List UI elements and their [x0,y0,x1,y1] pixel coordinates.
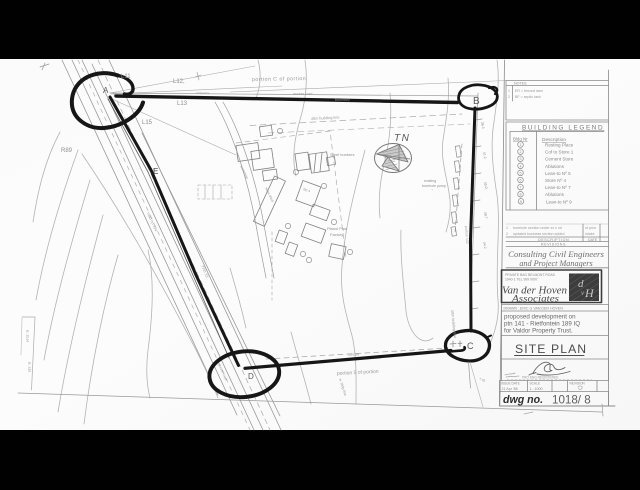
svg-text:existing: existing [424,179,436,183]
svg-text:21 Apr '88: 21 Apr '88 [502,387,518,391]
svg-text:and Project Managers: and Project Managers [519,259,592,268]
svg-text:2: 2 [508,95,510,99]
svg-text:Consulting Civil Engineers: Consulting Civil Engineers [508,249,604,259]
svg-text:intake: intake [585,232,595,236]
svg-text:2: 2 [506,232,508,236]
svg-text:→: → [430,187,434,191]
svg-text:ISSUE DATE: ISSUE DATE [501,382,520,386]
svg-text:2: 2 [520,150,522,154]
svg-text:access road: access road [293,92,312,96]
svg-text:H: H [584,286,595,300]
svg-text:boundary: boundary [335,98,350,102]
svg-text:PRIVATE BAG BELMONT ROAD: PRIVATE BAG BELMONT ROAD [505,273,556,277]
svg-text:Steel bunkers: Steel bunkers [330,152,354,157]
svg-text:L11: L11 [121,74,131,80]
svg-text:1: 1 [508,89,510,93]
svg-text:Cof to Store 1: Cof to Store 1 [545,150,574,155]
svg-text:L13: L13 [177,101,188,107]
svg-text:SCALE: SCALE [530,382,540,386]
svg-text:L12,: L12, [173,79,185,85]
svg-text:1940-1 TEL 999 9097: 1940-1 TEL 999 9097 [505,278,538,282]
svg-text:DATE: DATE [588,238,598,242]
svg-text:updated business section ad: updated business section added [513,232,565,236]
svg-text:R. 334: R. 334 [27,362,31,372]
svg-text:Lean-to Nº 7: Lean-to Nº 7 [545,185,571,190]
svg-text:R89: R89 [61,148,73,154]
svg-text:E: E [153,167,158,176]
svg-text:1: 1 [506,226,508,230]
svg-text:C: C [467,341,474,351]
svg-text:BUILDING LEGEND: BUILDING LEGEND [522,125,604,132]
svg-text:Lean-to Nº 5: Lean-to Nº 5 [545,171,571,176]
svg-text:4: 4 [520,164,522,168]
svg-text:Cement Store: Cement Store [545,157,574,162]
svg-text:7: 7 [520,186,522,190]
svg-text:NOTES: NOTES [514,81,527,85]
svg-text:Store Nº 4: Store Nº 4 [545,178,567,183]
svg-text:Resting Place: Resting Place [545,143,574,148]
svg-text:borehole pump: borehole pump [422,184,446,188]
svg-text:REVISIONS: REVISIONS [541,243,566,247]
svg-text:TN: TN [394,133,410,144]
svg-text:DESCRIPTION: DESCRIPTION [538,238,569,242]
svg-text:1: 1 [520,143,522,147]
svg-text:Planol Pipe: Planol Pipe [327,226,348,231]
svg-text:Ablutions: Ablutions [545,192,565,197]
svg-text:Ablutions: Ablutions [545,164,565,169]
svg-text:3: 3 [520,157,522,161]
svg-text:Bldg Nr: Bldg Nr [513,137,528,142]
svg-text:entrance: entrance [196,91,209,95]
svg-text:ER = fenced dam: ER = fenced dam [515,89,543,93]
svg-text:of prior: of prior [585,226,597,230]
svg-text:8: 8 [520,193,522,197]
svg-text:Factory: Factory [330,232,343,237]
svg-text:L15: L15 [142,120,153,126]
svg-text:D: D [248,372,254,381]
svg-text:portion C of portion: portion C of portion [252,76,306,83]
svg-text:1 : 1000: 1 : 1000 [530,387,543,391]
svg-text:BF = septic tank: BF = septic tank [515,95,541,99]
svg-text:5: 5 [520,171,522,175]
svg-text:Associates: Associates [511,294,560,304]
svg-text:PRO ENG REGISTERED: PRO ENG REGISTERED [522,376,559,380]
svg-text:A: A [103,86,109,95]
svg-text:dwg no.: dwg no. [503,394,543,406]
svg-text:borehole section under xx x: borehole section under xx x xd [513,226,562,230]
svg-text:B: B [473,96,480,107]
svg-text:for Valdor Property Trust.: for Valdor Property Trust. [504,327,573,334]
svg-text:9: 9 [520,200,522,204]
svg-text:R. 2014: R. 2014 [25,330,29,342]
svg-text:6: 6 [520,179,522,183]
svg-text:Lean-to Nº 9: Lean-to Nº 9 [546,199,572,204]
svg-text:proposed development on: proposed development on [504,314,576,321]
svg-text:SITE PLAN: SITE PLAN [515,342,587,356]
svg-text:134.56: 134.56 [348,352,359,357]
svg-text:1018/ 8: 1018/ 8 [552,394,591,407]
svg-text:REVISION: REVISION [570,382,586,386]
svg-text:DRAWN : ERIC G VAN DER HO: DRAWN : ERIC G VAN DER HOVEN [504,307,564,311]
